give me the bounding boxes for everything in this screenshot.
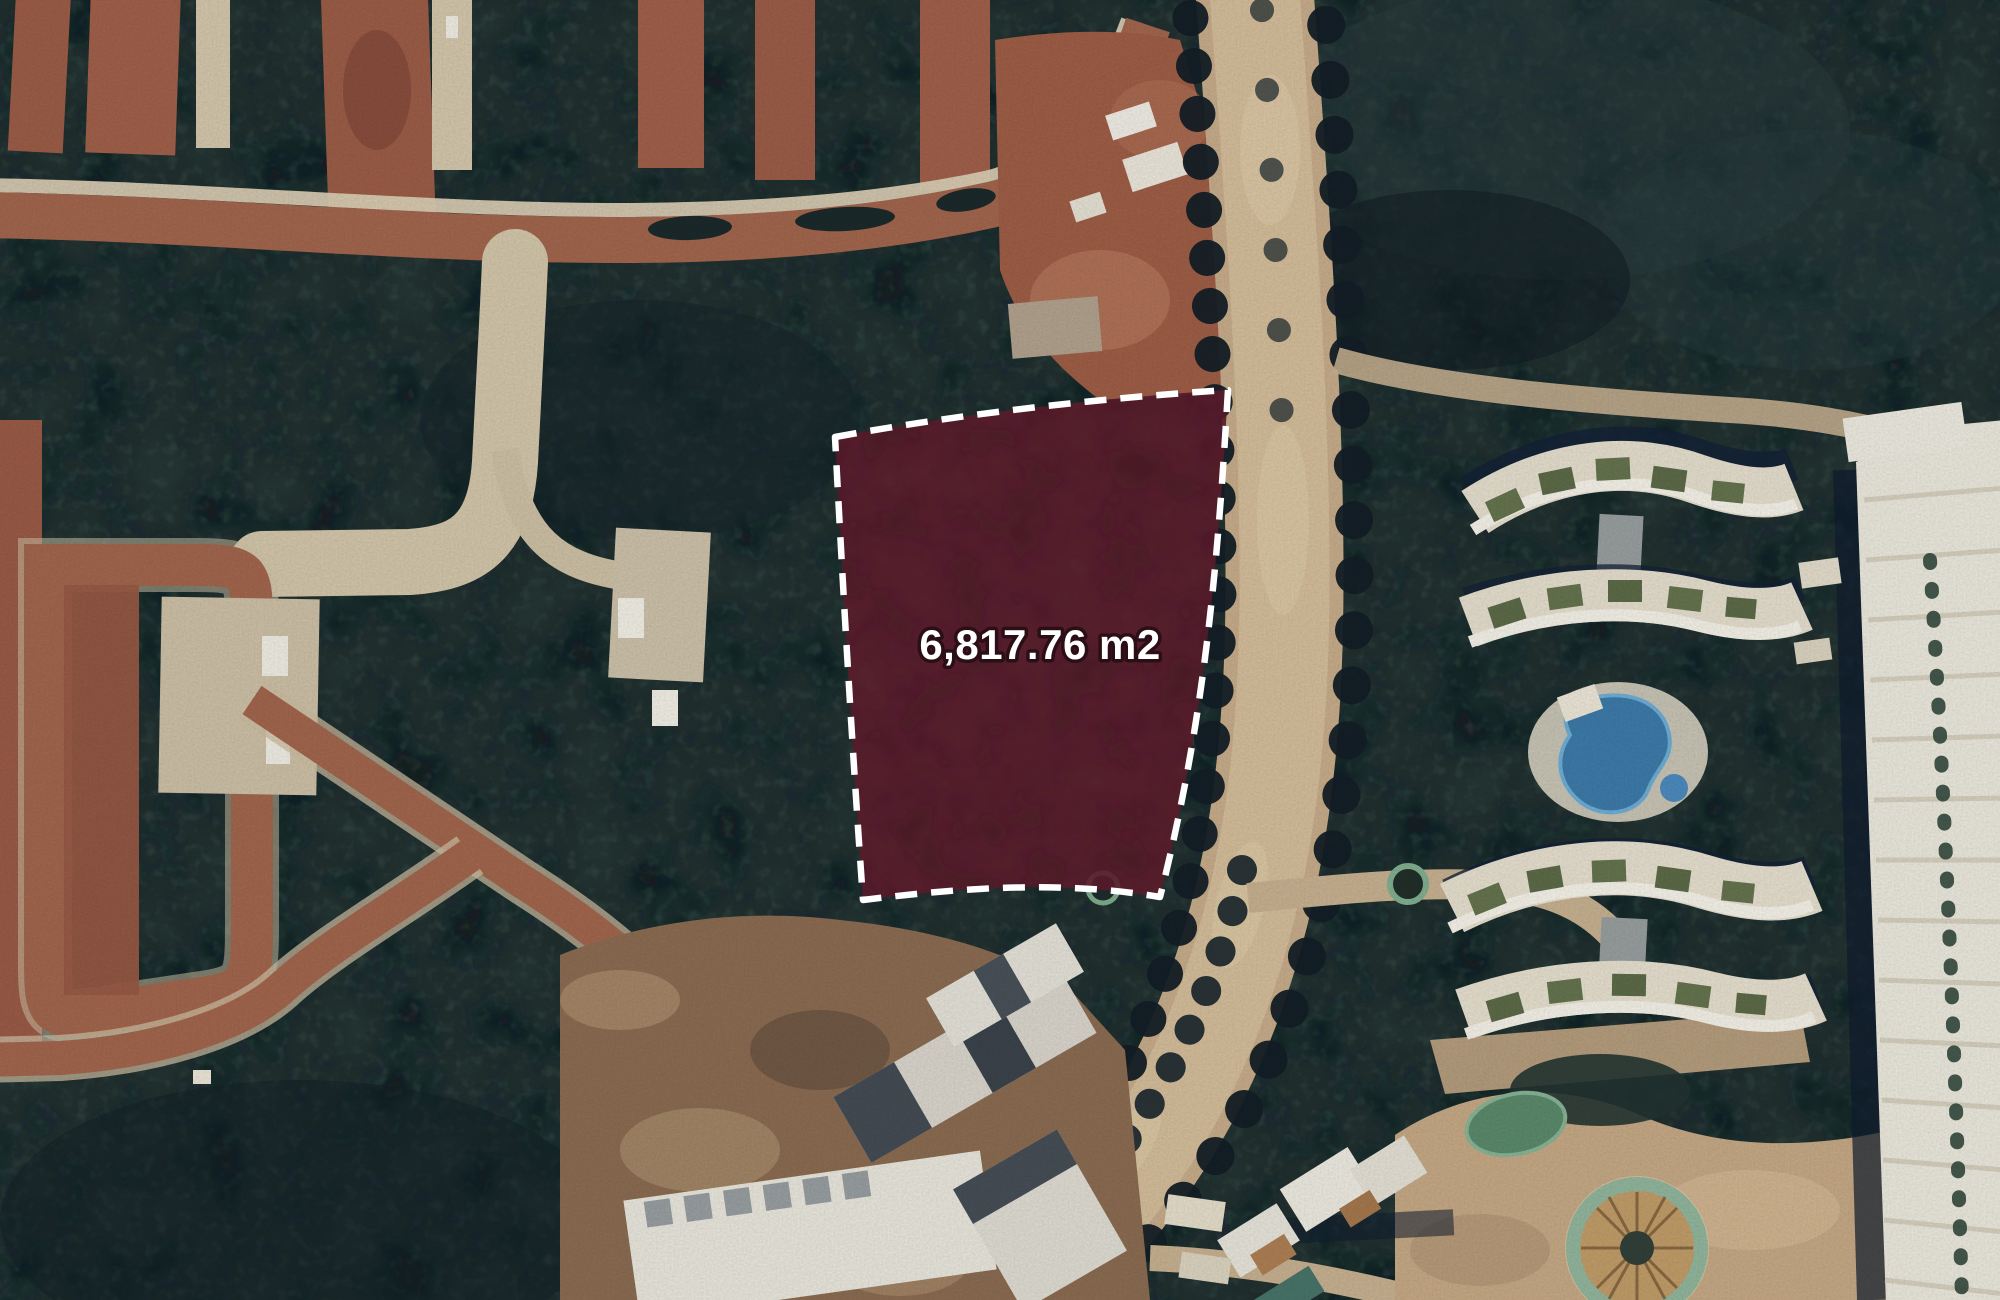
parcel-area-label: 6,817.76 m2: [919, 621, 1160, 668]
satellite-map-image[interactable]: 6,817.76 m2: [0, 0, 2000, 1300]
map-canvas[interactable]: 6,817.76 m2: [0, 0, 2000, 1300]
